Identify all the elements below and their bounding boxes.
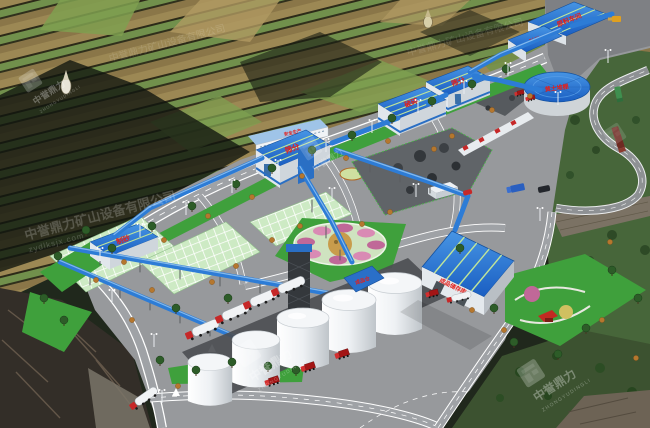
silo [188, 354, 232, 406]
silo [322, 290, 376, 354]
plant-aerial-render: 安全生产 原料车间 破碎 黄土堆棚 筛分 破碎 [0, 0, 650, 428]
render-stage: 安全生产 原料车间 破碎 黄土堆棚 筛分 破碎 [0, 0, 650, 428]
round-stockpile-shed: 黄土堆棚 [524, 72, 590, 116]
